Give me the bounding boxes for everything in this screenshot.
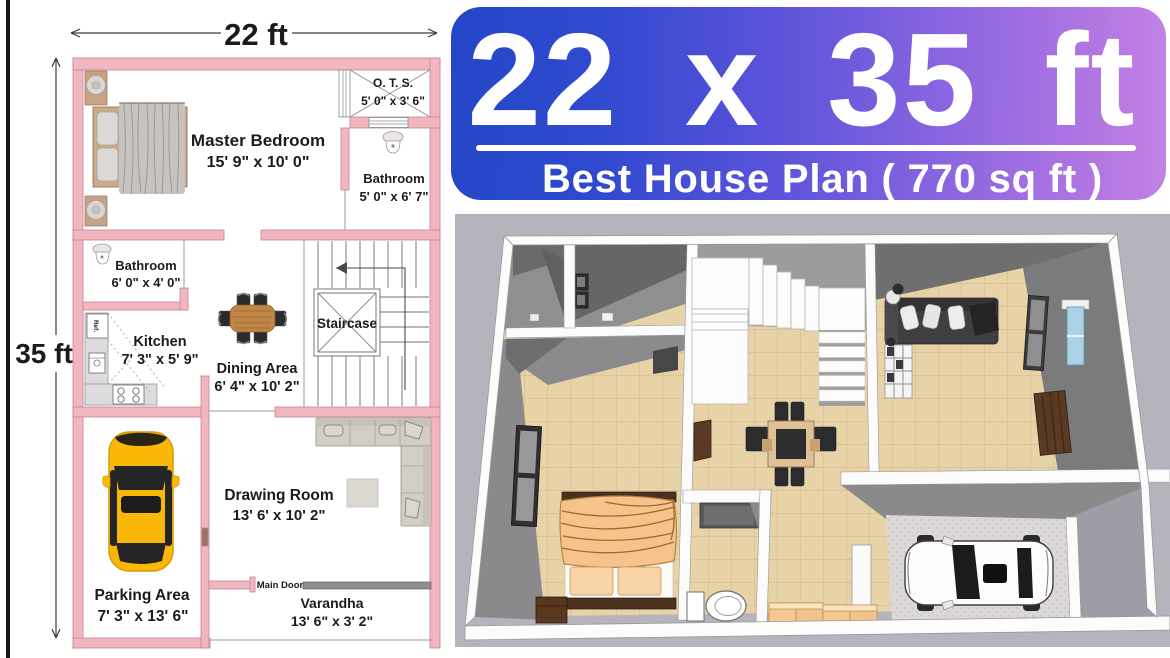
svg-text:O. T. S.: O. T. S. [373,76,413,90]
svg-text:Drawing Room: Drawing Room [224,487,333,504]
svg-text:22 ft: 22 ft [224,17,288,52]
svg-text:5' 0" x 3' 6": 5' 0" x 3' 6" [361,94,425,108]
svg-text:Master Bedroom: Master Bedroom [191,131,325,150]
svg-text:Bathroom: Bathroom [363,171,424,186]
svg-text:Varandha: Varandha [300,595,363,611]
svg-text:5' 0" x 6' 7": 5' 0" x 6' 7" [359,189,428,204]
svg-text:13' 6' x 10' 2": 13' 6' x 10' 2" [233,507,326,524]
svg-text:Staircase: Staircase [317,316,378,331]
svg-text:Main Door: Main Door [257,580,304,591]
svg-text:15' 9" x 10' 0": 15' 9" x 10' 0" [207,154,310,171]
svg-text:Parking Area: Parking Area [94,587,189,604]
svg-text:Ref.: Ref. [92,320,99,332]
svg-text:35 ft: 35 ft [15,338,73,369]
svg-text:7' 3" x 5' 9": 7' 3" x 5' 9" [121,352,198,368]
svg-text:6' 0" x 4' 0": 6' 0" x 4' 0" [111,275,180,290]
svg-text:7' 3" x 13' 6": 7' 3" x 13' 6" [97,608,188,625]
svg-text:Dining Area: Dining Area [217,361,299,377]
svg-text:13' 6" x 3' 2": 13' 6" x 3' 2" [291,613,373,629]
svg-text:6' 4" x 10' 2": 6' 4" x 10' 2" [214,379,299,395]
svg-text:Bathroom: Bathroom [115,258,176,273]
svg-text:Kitchen: Kitchen [133,334,186,350]
